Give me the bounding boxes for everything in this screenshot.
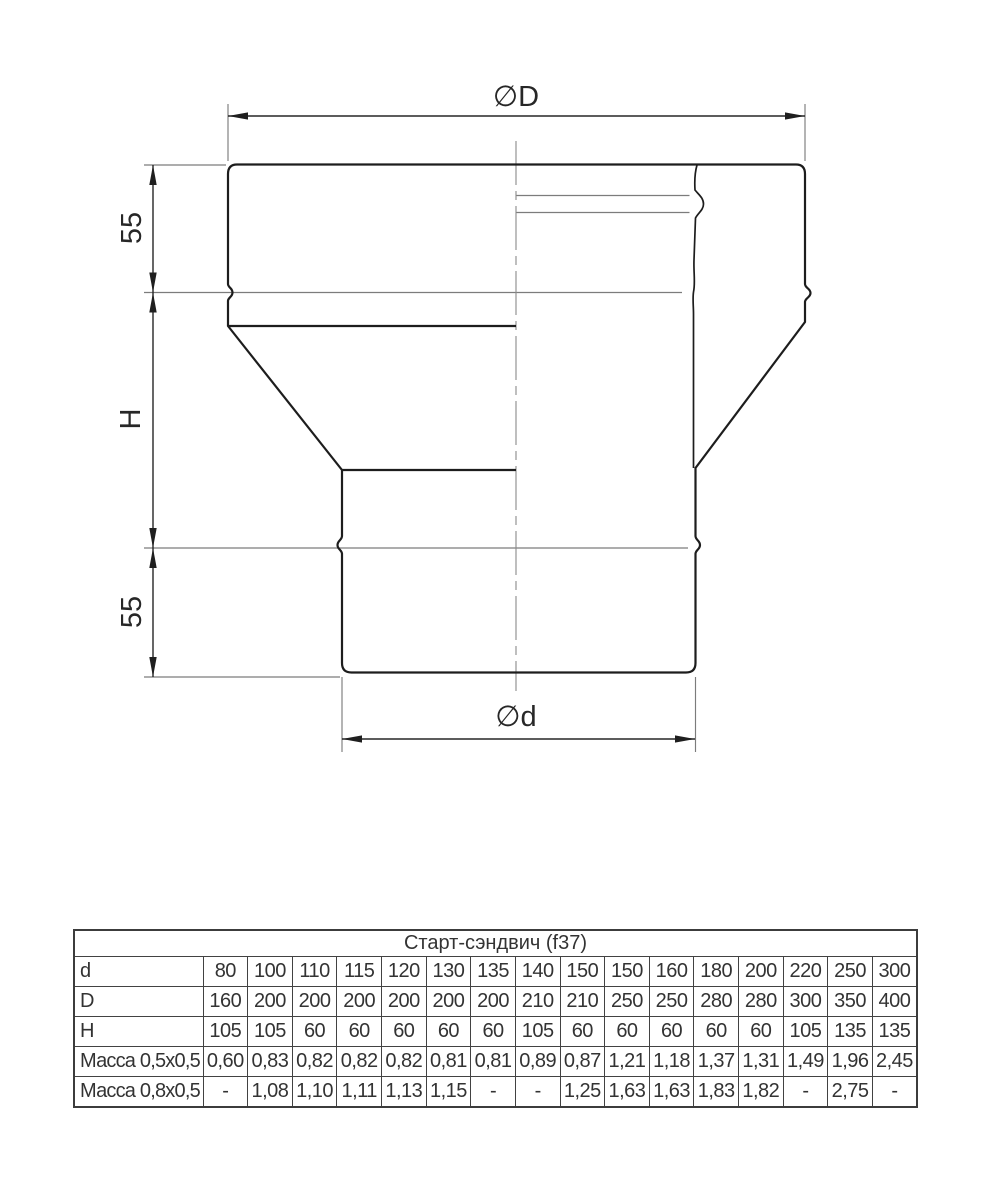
table-cell: 1,10 [292, 1077, 337, 1108]
table-cell: 220 [783, 957, 828, 987]
technical-drawing: ∅D ∅d 55 H 55 [0, 0, 995, 800]
table-cell: 210 [560, 987, 605, 1017]
table-row: Масса 0,8x0,5-1,081,101,111,131,15--1,25… [74, 1077, 917, 1108]
table-cell: 0,89 [515, 1047, 560, 1077]
arrow-d-right [675, 735, 695, 742]
table-cell: 0,82 [292, 1047, 337, 1077]
arrow-D-left [228, 112, 248, 119]
table-cell: 1,25 [560, 1077, 605, 1108]
table-cell: 120 [382, 957, 427, 987]
row-label-4: Масса 0,8x0,5 [74, 1077, 203, 1108]
witness-lines [144, 104, 805, 752]
table-cell: 105 [203, 1017, 248, 1047]
table-cell: 60 [605, 1017, 650, 1047]
table-row: Масса 0,5x0,50,600,830,820,820,820,810,8… [74, 1047, 917, 1077]
table-cell: 150 [560, 957, 605, 987]
table-cell: 1,83 [694, 1077, 739, 1108]
table-cell: 60 [292, 1017, 337, 1047]
section-lines [228, 326, 516, 470]
arrow-H-down [149, 528, 156, 548]
row-label-1: D [74, 987, 203, 1017]
table-cell: 200 [337, 987, 382, 1017]
table-cell: 135 [828, 1017, 873, 1047]
table-cell: 1,49 [783, 1047, 828, 1077]
table-cell: 200 [426, 987, 471, 1017]
spec-table: Старт-сэндвич (f37)d80100110115120130135… [73, 929, 918, 1108]
label-diameter-d: ∅d [495, 701, 536, 733]
table-cell: 200 [739, 957, 784, 987]
row-label-0: d [74, 957, 203, 987]
table-cell: 200 [471, 987, 516, 1017]
table-cell: 160 [203, 987, 248, 1017]
table-cell: 0,82 [382, 1047, 427, 1077]
table-cell: 60 [560, 1017, 605, 1047]
arrowheads [149, 112, 805, 742]
table-cell: 110 [292, 957, 337, 987]
table-cell: 80 [203, 957, 248, 987]
table-cell: 135 [471, 957, 516, 987]
label-height-H: H [115, 409, 147, 430]
table-cell: 200 [292, 987, 337, 1017]
table-cell: 60 [426, 1017, 471, 1047]
table-cell: 1,08 [248, 1077, 293, 1108]
table-cell: 60 [694, 1017, 739, 1047]
table-cell: 2,45 [872, 1047, 917, 1077]
arrow-D-right [785, 112, 805, 119]
table-cell: - [471, 1077, 516, 1108]
table-cell: 250 [649, 987, 694, 1017]
label-diameter-D: ∅D [493, 81, 539, 113]
body-contour [228, 165, 811, 673]
table-cell: 1,96 [828, 1047, 873, 1077]
table-cell: 160 [649, 957, 694, 987]
table-cell: 2,75 [828, 1077, 873, 1108]
table-cell: 140 [515, 957, 560, 987]
table-cell: - [783, 1077, 828, 1108]
table-cell: - [515, 1077, 560, 1108]
table-row: H10510560606060601056060606060105135135 [74, 1017, 917, 1047]
table-cell: 200 [248, 987, 293, 1017]
dimension-lines [153, 116, 805, 739]
table-cell: 1,63 [605, 1077, 650, 1108]
table-cell: 1,37 [694, 1047, 739, 1077]
page: ∅D ∅d 55 H 55 Старт-сэндвич (f37)d801001… [0, 0, 995, 1200]
table-cell: 105 [248, 1017, 293, 1047]
table-cell: 60 [739, 1017, 784, 1047]
arrow-55bot-up [149, 548, 156, 568]
arrow-55top-up [149, 165, 156, 185]
table-title: Старт-сэндвич (f37) [74, 930, 917, 957]
table-cell: 60 [649, 1017, 694, 1047]
table-cell: 100 [248, 957, 293, 987]
table-cell: 0,83 [248, 1047, 293, 1077]
table-cell: - [872, 1077, 917, 1108]
table-cell: 1,11 [337, 1077, 382, 1108]
table-cell: 60 [471, 1017, 516, 1047]
table-cell: 250 [828, 957, 873, 987]
table-cell: 280 [739, 987, 784, 1017]
arrow-H-up [149, 293, 156, 313]
table-cell: 180 [694, 957, 739, 987]
table-cell: 130 [426, 957, 471, 987]
table-cell: 350 [828, 987, 873, 1017]
table-cell: 1,15 [426, 1077, 471, 1108]
table-cell: 105 [515, 1017, 560, 1047]
table-title-row: Старт-сэндвич (f37) [74, 930, 917, 957]
table-cell: 1,13 [382, 1077, 427, 1108]
table-cell: 0,60 [203, 1047, 248, 1077]
table-cell: 300 [783, 987, 828, 1017]
inner-pipe-edge [693, 165, 703, 468]
table-cell: 115 [337, 957, 382, 987]
table-cell: 0,81 [471, 1047, 516, 1077]
table-cell: 1,63 [649, 1077, 694, 1108]
label-height-55-top: 55 [116, 212, 148, 244]
arrow-55bot-down [149, 657, 156, 677]
table-cell: 0,81 [426, 1047, 471, 1077]
table-cell: 200 [382, 987, 427, 1017]
table-cell: 280 [694, 987, 739, 1017]
table-cell: 135 [872, 1017, 917, 1047]
table-cell: 400 [872, 987, 917, 1017]
arrow-55top-down [149, 273, 156, 293]
table-cell: 1,21 [605, 1047, 650, 1077]
table-cell: 300 [872, 957, 917, 987]
table-cell: 60 [382, 1017, 427, 1047]
table-row: d801001101151201301351401501501601802002… [74, 957, 917, 987]
label-height-55-bottom: 55 [116, 596, 148, 628]
table-row: D160200200200200200200210210250250280280… [74, 987, 917, 1017]
row-label-2: H [74, 1017, 203, 1047]
table-cell: 210 [515, 987, 560, 1017]
table-cell: 60 [337, 1017, 382, 1047]
arrow-d-left [342, 735, 362, 742]
table-cell: - [203, 1077, 248, 1108]
spec-table-container: Старт-сэндвич (f37)d80100110115120130135… [73, 929, 918, 1108]
table-cell: 1,31 [739, 1047, 784, 1077]
table-cell: 150 [605, 957, 650, 987]
table-cell: 1,82 [739, 1077, 784, 1108]
table-cell: 105 [783, 1017, 828, 1047]
table-cell: 0,82 [337, 1047, 382, 1077]
table-cell: 1,18 [649, 1047, 694, 1077]
table-cell: 250 [605, 987, 650, 1017]
table-cell: 0,87 [560, 1047, 605, 1077]
row-label-3: Масса 0,5x0,5 [74, 1047, 203, 1077]
